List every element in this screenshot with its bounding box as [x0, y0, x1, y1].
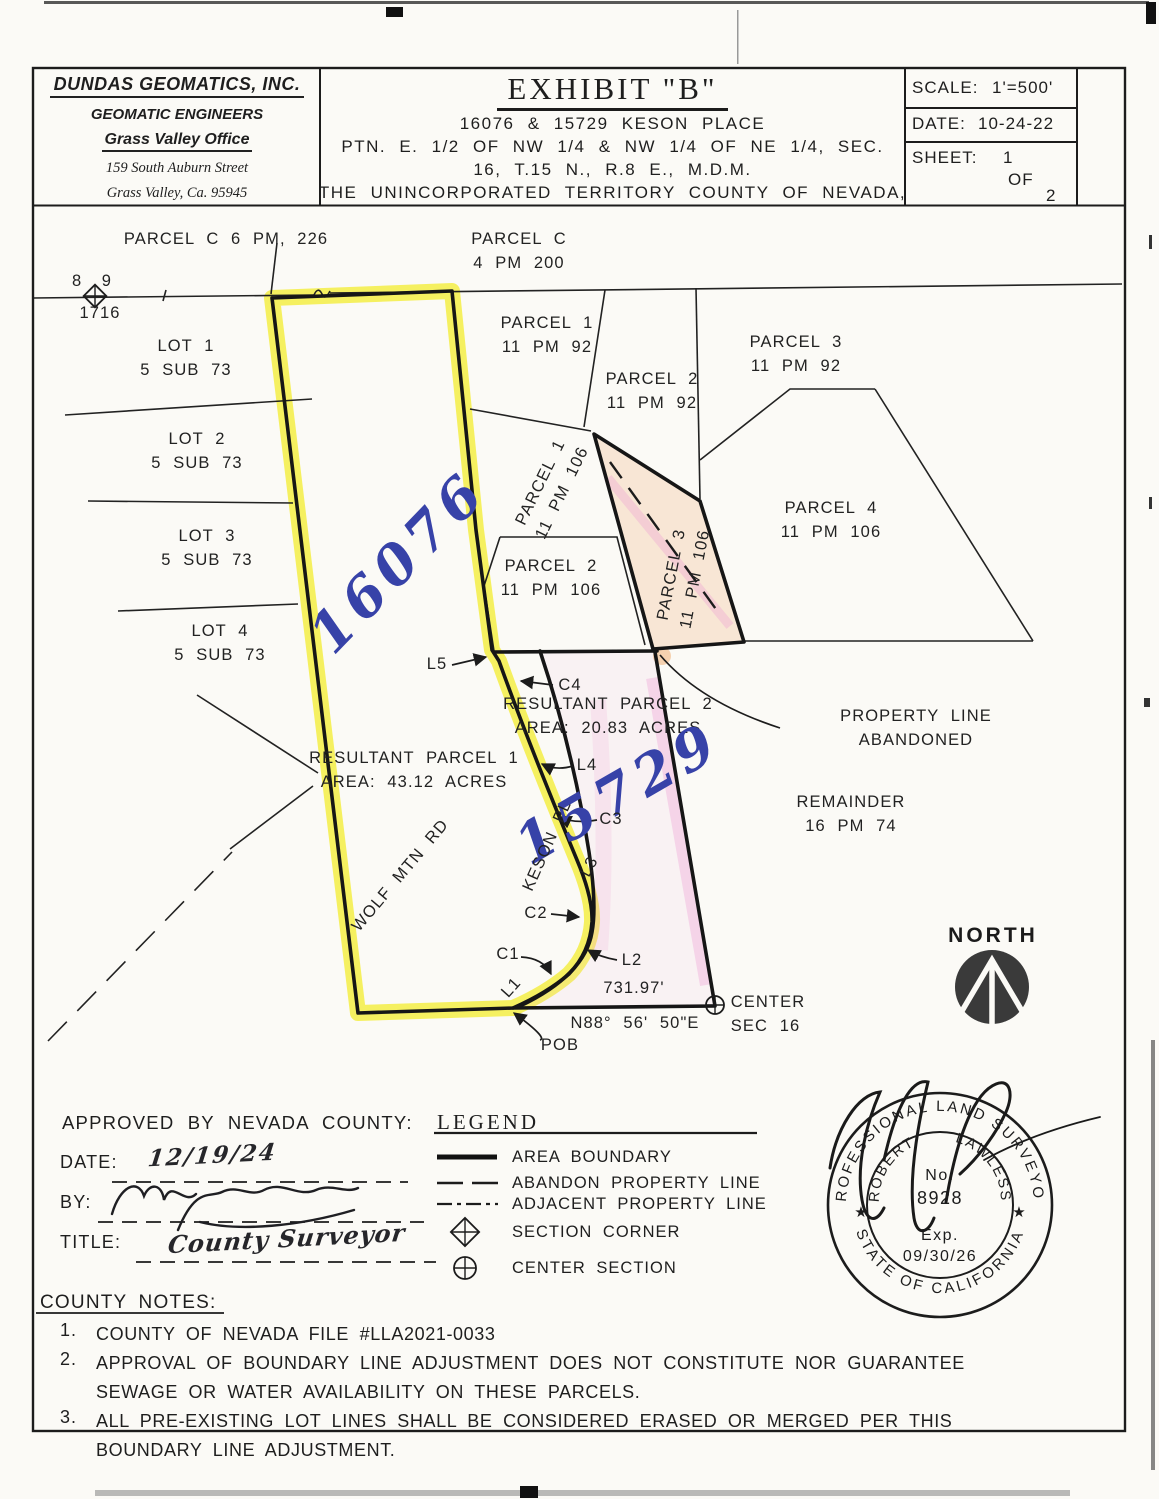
label-remainder: REMAINDER 16 PM 74	[797, 791, 906, 839]
label-l1: L1	[496, 972, 528, 1003]
label-c1: C1	[496, 943, 519, 967]
approval-date-label: DATE:	[60, 1152, 118, 1173]
label-lot3: LOT 3 5 SUB 73	[161, 525, 252, 573]
label-parcel1-11pm106: PARCEL 1 11 PM 106	[508, 432, 595, 543]
label-center-sec-16: CENTER SEC 16	[731, 991, 805, 1039]
legend-title: LEGEND	[437, 1110, 539, 1135]
legend-item-center-section: CENTER SECTION	[512, 1259, 677, 1278]
label-lot4: LOT 4 5 SUB 73	[174, 620, 265, 668]
label-c3: C3	[599, 808, 622, 832]
label-north: NORTH	[948, 921, 1038, 951]
approval-title-label: TITLE:	[60, 1232, 121, 1253]
approval-heading: APPROVED BY NEVADA COUNTY:	[62, 1112, 413, 1134]
handwritten-16076: 16076	[291, 453, 506, 671]
label-bearing: N88° 56' 50"E	[570, 1012, 699, 1036]
label-parcel1-11pm92: PARCEL 1 11 PM 92	[501, 312, 594, 360]
note-number: 2.	[60, 1349, 96, 1407]
label-lot1: LOT 1 5 SUB 73	[140, 335, 231, 383]
label-lot2: LOT 2 5 SUB 73	[151, 428, 242, 476]
legend-item-adjacent-property-line: ADJACENT PROPERTY LINE	[512, 1195, 767, 1214]
label-parcel3-11pm106: PARCEL 3 11 PM 106	[651, 523, 717, 631]
county-note-2: 2. APPROVAL OF BOUNDARY LINE ADJUSTMENT …	[60, 1349, 1050, 1407]
label-parcel2-11pm92: PARCEL 2 11 PM 92	[606, 368, 699, 416]
legend-item-abandon-property-line: ABANDON PROPERTY LINE	[512, 1174, 761, 1193]
note-text: COUNTY OF NEVADA FILE #LLA2021-0033	[96, 1320, 1001, 1349]
label-wolf-mtn-rd: WOLF MTN RD	[347, 814, 456, 937]
note-number: 3.	[60, 1407, 96, 1465]
label-parcel-c-4pm200: PARCEL C 4 PM 200	[471, 228, 567, 276]
approval-by-label: BY:	[60, 1192, 92, 1213]
county-notes-heading: COUNTY NOTES:	[40, 1292, 217, 1314]
note-text: ALL PRE-EXISTING LOT LINES SHALL BE CONS…	[96, 1407, 1001, 1465]
note-number: 1.	[60, 1320, 96, 1349]
county-note-3: 3. ALL PRE-EXISTING LOT LINES SHALL BE C…	[60, 1407, 1050, 1465]
label-parcel3-11pm92: PARCEL 3 11 PM 92	[750, 331, 843, 379]
label-parcel2-11pm106: PARCEL 2 11 PM 106	[501, 555, 601, 603]
label-c2: C2	[524, 902, 547, 926]
legend-item-section-corner: SECTION CORNER	[512, 1223, 680, 1242]
label-pob: POB	[541, 1034, 579, 1058]
note-text: APPROVAL OF BOUNDARY LINE ADJUSTMENT DOE…	[96, 1349, 1001, 1407]
survey-exhibit-page: PROFESSIONAL LAND SURVEYOR STATE OF CALI…	[0, 0, 1159, 1499]
label-property-line-abandoned: PROPERTY LINE ABANDONED	[795, 705, 1038, 753]
county-note-1: 1. COUNTY OF NEVADA FILE #LLA2021-0033	[60, 1320, 1050, 1349]
label-resultant-parcel-1: RESULTANT PARCEL 1 AREA: 43.12 ACRES	[309, 747, 519, 795]
label-l5: L5	[427, 653, 448, 677]
label-corner-1716: 1716	[79, 302, 120, 326]
label-parcel-c-6pm226: PARCEL C 6 PM, 226	[124, 228, 328, 252]
label-dim-731-97: 731.97'	[603, 977, 664, 1001]
legend-item-area-boundary: AREA BOUNDARY	[512, 1148, 672, 1167]
label-parcel4-11pm106: PARCEL 4 11 PM 106	[781, 497, 881, 545]
label-l2: L2	[622, 949, 643, 973]
label-corner-8-9: 8 9	[72, 270, 116, 294]
